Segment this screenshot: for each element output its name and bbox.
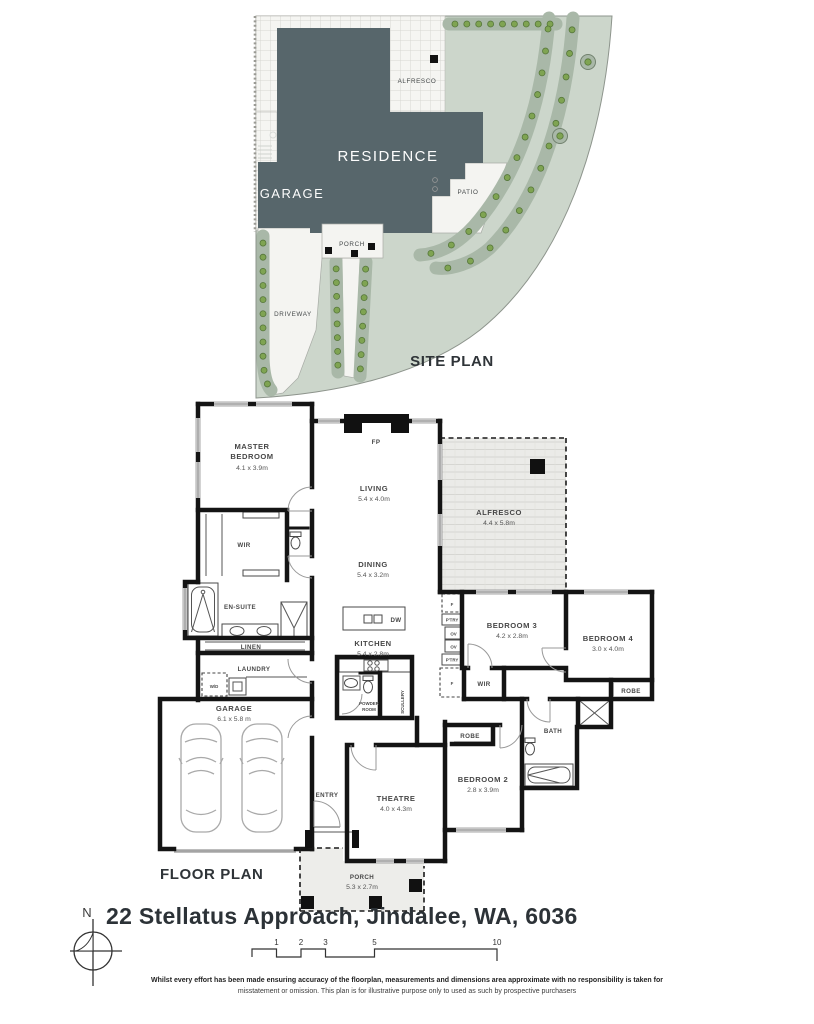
porch-label: PORCH <box>350 874 374 881</box>
oven2-label: OV <box>450 645 456 650</box>
plant-icon <box>553 120 559 126</box>
north-label: N <box>82 905 91 920</box>
svg-text:5.4 x 3.2m: 5.4 x 3.2m <box>357 572 389 579</box>
linen-label: LINEN <box>241 644 262 651</box>
plan-canvas: ALFRESCO RESIDENCE GARAGE PATIO PORCH DR… <box>0 0 814 1024</box>
bed4-label: BEDROOM 4 <box>583 634 634 643</box>
svg-text:4.0 x 4.3m: 4.0 x 4.3m <box>380 806 412 813</box>
car-icon <box>179 724 223 832</box>
plant-icon <box>260 240 266 246</box>
alfresco-label: ALFRESCO <box>476 508 522 517</box>
scale-tick: 5 <box>372 938 377 947</box>
fireplace <box>344 414 409 433</box>
bed3-label: BEDROOM 3 <box>487 621 538 630</box>
site-alfresco-label: ALFRESCO <box>398 78 437 85</box>
plant-icon <box>539 70 545 76</box>
site-patio-label: PATIO <box>458 189 479 196</box>
svg-text:4.2 x 2.8m: 4.2 x 2.8m <box>496 633 528 640</box>
plant-icon <box>535 21 541 27</box>
scullery-label: SCULLERY <box>400 690 405 714</box>
alfresco-post <box>530 459 545 474</box>
plant-icon <box>363 266 369 272</box>
site-plan: ALFRESCO RESIDENCE GARAGE PATIO PORCH DR… <box>255 16 612 398</box>
powder-label: POWDER <box>359 701 380 706</box>
plant-icon <box>522 134 528 140</box>
bath-label: BATH <box>544 728 562 735</box>
plant-icon <box>476 21 482 27</box>
kitchen-label: KITCHEN <box>354 639 391 648</box>
property-address: 22 Stellatus Approach, Jindalee, WA, 603… <box>106 903 578 930</box>
plant-icon <box>504 175 510 181</box>
svg-text:2.8 x 3.9m: 2.8 x 3.9m <box>467 787 499 794</box>
bed2-label: BEDROOM 2 <box>458 775 509 784</box>
svg-text:5.3 x 2.7m: 5.3 x 2.7m <box>346 884 378 891</box>
fp-label: FP <box>372 439 381 446</box>
plant-icon <box>535 92 541 98</box>
svg-text:4.4 x 5.8m: 4.4 x 5.8m <box>483 520 515 527</box>
plant-icon <box>260 268 266 274</box>
site-residence-label: RESIDENCE <box>337 148 438 165</box>
plant-icon <box>334 307 340 313</box>
plant-icon <box>333 266 339 272</box>
plant-icon <box>516 208 522 214</box>
dining-label: DINING <box>358 560 388 569</box>
plant-icon <box>488 21 494 27</box>
site-porch-label: PORCH <box>339 241 365 248</box>
svg-text:6.1 x 5.8 m: 6.1 x 5.8 m <box>217 716 251 723</box>
plant-icon <box>334 321 340 327</box>
plant-icon <box>333 280 339 286</box>
garden-bed-mid1 <box>336 262 338 372</box>
svg-text:ROOM: ROOM <box>362 707 376 712</box>
svg-text:3.0 x 4.0m: 3.0 x 4.0m <box>592 646 624 653</box>
theatre-label: THEATRE <box>377 794 416 803</box>
plant-icon <box>546 143 552 149</box>
car-icon <box>240 724 284 832</box>
plant-icon <box>334 293 340 299</box>
garage-label: GARAGE <box>216 704 252 713</box>
dw-label: DW <box>390 617 401 624</box>
entry-label: ENTRY <box>316 792 339 799</box>
plant-icon <box>428 250 434 256</box>
plant-icon <box>528 187 534 193</box>
garden-bed-mid2 <box>360 262 366 376</box>
robe4-label: ROBE <box>621 688 640 695</box>
plant-icon <box>357 366 363 372</box>
plant-icon <box>514 155 520 161</box>
plant-icon <box>500 21 506 27</box>
plant-icon <box>264 381 270 387</box>
plant-icon <box>361 295 367 301</box>
plant-icon <box>360 309 366 315</box>
plant-icon <box>358 352 364 358</box>
floor-plan-labels: MASTER BEDROOM 4.1 x 3.9m WIR EN-SUITE L… <box>210 439 641 891</box>
plant-icon <box>542 48 548 54</box>
plant-icon <box>503 227 509 233</box>
pantry-top-label: P'TRY <box>446 618 459 623</box>
wir-label: WIR <box>237 542 250 549</box>
site-alfresco-post <box>430 55 438 63</box>
plant-icon <box>360 323 366 329</box>
scale-bar: 1 2 3 5 10 <box>252 938 502 961</box>
plant-icon <box>260 297 266 303</box>
plant-icon <box>523 21 529 27</box>
plant-icon <box>260 282 266 288</box>
site-garage-label: GARAGE <box>260 186 325 201</box>
plant-icon <box>335 362 341 368</box>
oven1-label: OV <box>450 632 456 637</box>
site-driveway-label: DRIVEWAY <box>274 311 312 318</box>
plant-icon <box>567 50 573 56</box>
ensuite-label: EN-SUITE <box>224 604 256 611</box>
plant-icon <box>538 165 544 171</box>
plant-icon <box>480 212 486 218</box>
plant-icon <box>487 245 493 251</box>
plant-icon <box>260 325 266 331</box>
plant-icon <box>493 194 499 200</box>
floorplan-page: ALFRESCO RESIDENCE GARAGE PATIO PORCH DR… <box>0 0 814 1024</box>
plant-icon <box>362 280 368 286</box>
disclaimer-line1: Whilst every effort has been made ensuri… <box>0 977 814 984</box>
fridge-top-label: F <box>451 602 454 607</box>
plant-icon <box>334 335 340 341</box>
svg-text:5.4 x 4.0m: 5.4 x 4.0m <box>358 496 390 503</box>
living-label: LIVING <box>360 484 388 493</box>
plant-icon <box>466 228 472 234</box>
plant-icon <box>511 21 517 27</box>
wd-label: W/D <box>210 684 219 689</box>
plant-icon <box>260 339 266 345</box>
site-plan-title: SITE PLAN <box>410 353 494 370</box>
plant-icon <box>452 21 458 27</box>
svg-text:5.4 x 2.8m: 5.4 x 2.8m <box>357 651 389 658</box>
scale-tick: 1 <box>274 938 279 947</box>
plant-icon <box>445 265 451 271</box>
disclaimer-line2: misstatement or omission. This plan is f… <box>0 988 814 995</box>
plant-icon <box>559 97 565 103</box>
plant-icon <box>467 258 473 264</box>
svg-text:BEDROOM: BEDROOM <box>230 452 273 461</box>
pantry-bottom-label: P'TRY <box>446 658 459 663</box>
plant-icon <box>529 113 535 119</box>
plant-icon <box>569 27 575 33</box>
plant-icon <box>260 254 266 260</box>
plant-icon <box>261 367 267 373</box>
robe2-label: ROBE <box>460 733 479 740</box>
laundry-label: LAUNDRY <box>238 666 271 673</box>
scale-tick: 2 <box>299 938 304 947</box>
plant-icon <box>464 21 470 27</box>
svg-text:4.1 x 3.9m: 4.1 x 3.9m <box>236 465 268 472</box>
plant-icon <box>359 337 365 343</box>
scale-tick: 3 <box>323 938 328 947</box>
plant-icon <box>545 26 551 32</box>
master-bedroom-label: MASTER <box>234 442 269 451</box>
floor-plan: MASTER BEDROOM 4.1 x 3.9m WIR EN-SUITE L… <box>160 404 652 911</box>
plant-icon <box>335 348 341 354</box>
scale-tick: 10 <box>493 938 502 947</box>
fridge-bottom-label: F <box>451 681 454 686</box>
wir2-label: WIR <box>477 681 490 688</box>
plant-icon <box>563 74 569 80</box>
plant-icon <box>260 353 266 359</box>
floor-plan-title: FLOOR PLAN <box>160 866 264 883</box>
plant-icon <box>448 242 454 248</box>
plant-icon <box>260 311 266 317</box>
